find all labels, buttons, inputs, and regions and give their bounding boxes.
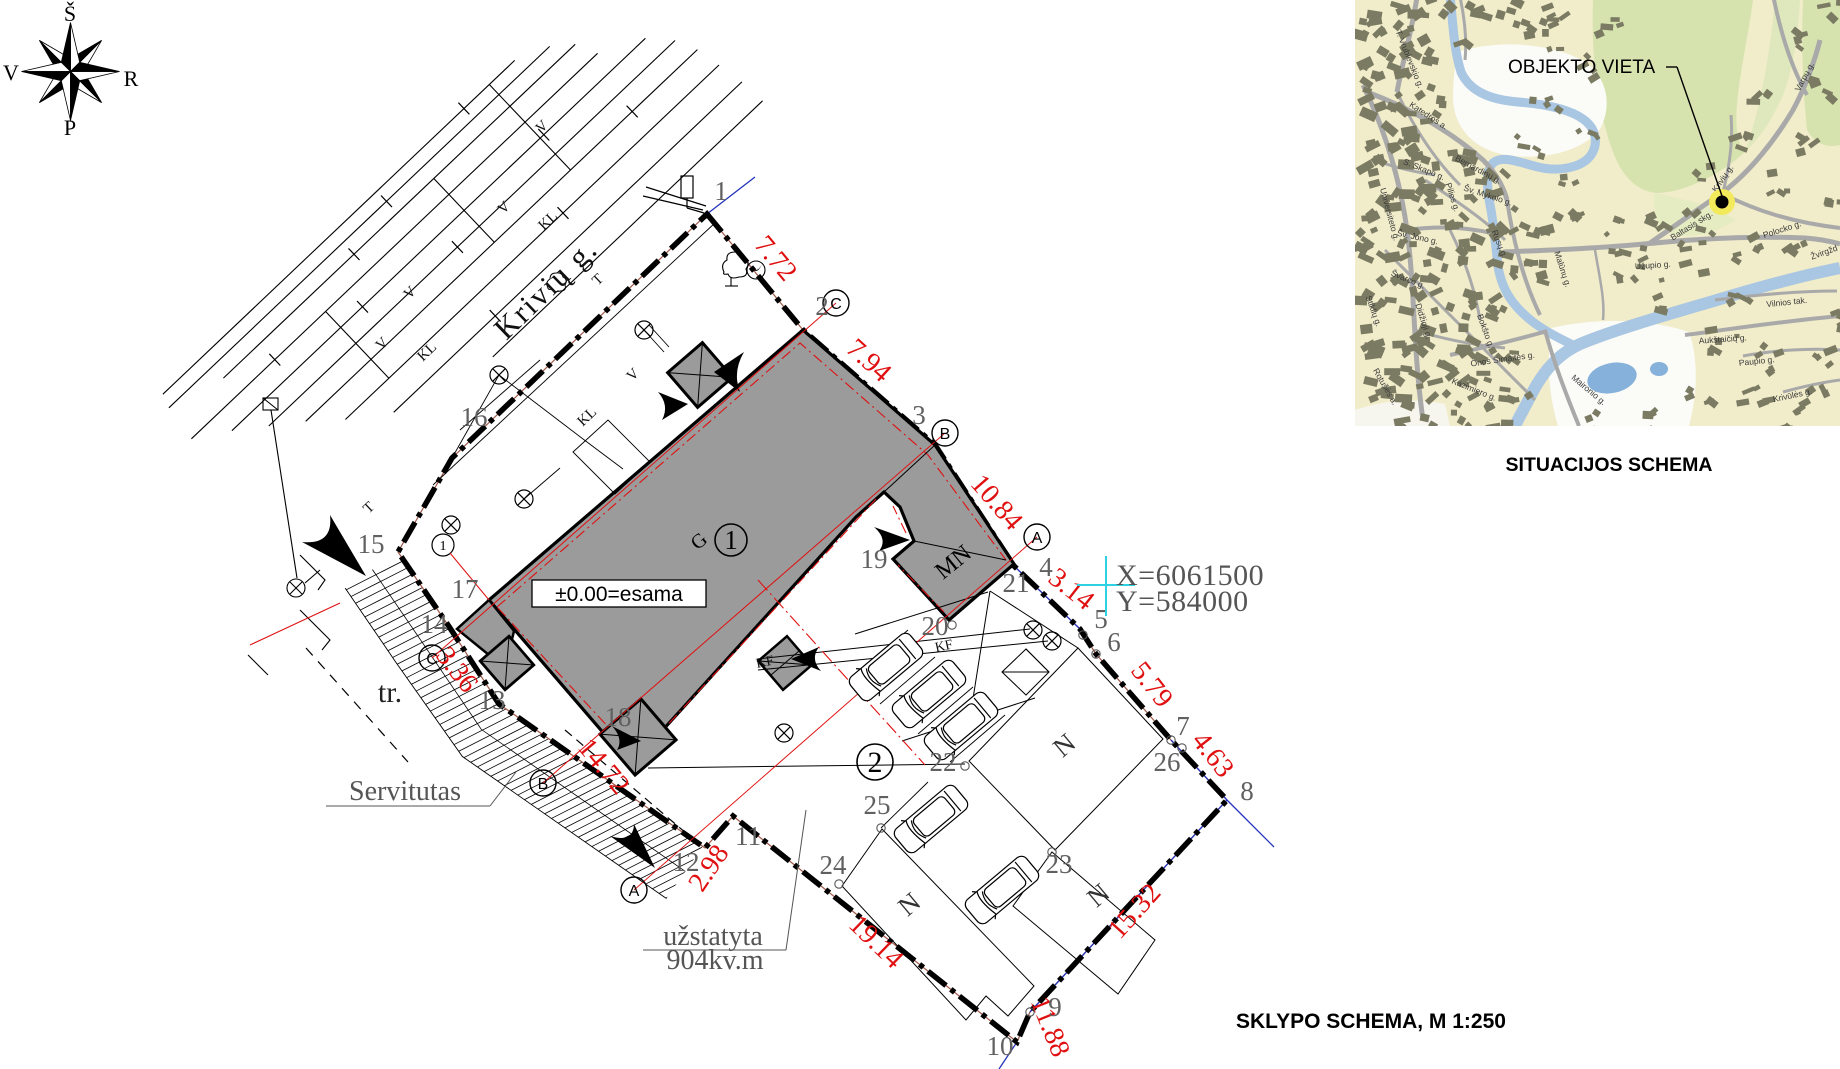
svg-text:A: A [1032,530,1043,547]
svg-text:2: 2 [868,746,883,779]
svg-text:B: B [538,776,549,793]
svg-text:10: 10 [987,1031,1014,1061]
svg-text:14: 14 [421,609,449,639]
svg-text:C: C [830,296,842,313]
svg-text:tr.: tr. [378,676,402,709]
svg-text:6: 6 [1107,627,1121,657]
svg-text:19: 19 [861,544,888,574]
svg-text:12: 12 [673,847,700,877]
svg-text:22: 22 [930,747,957,777]
svg-text:13: 13 [479,685,506,715]
svg-text:15: 15 [358,529,385,559]
svg-text:25: 25 [864,790,891,820]
svg-text:Š: Š [64,1,76,26]
svg-text:23: 23 [1046,849,1073,879]
svg-text:20: 20 [922,611,949,641]
svg-text:Y=584000: Y=584000 [1116,585,1249,618]
svg-text:Servitutas: Servitutas [349,776,461,807]
svg-text:SITUACIJOS SCHEMA: SITUACIJOS SCHEMA [1506,454,1713,476]
svg-text:R: R [124,66,139,91]
svg-text:2: 2 [815,291,829,321]
svg-text:1: 1 [724,525,738,555]
svg-text:21: 21 [1003,568,1030,598]
svg-text:1: 1 [714,176,728,206]
svg-text:9: 9 [1048,992,1062,1022]
svg-text:18: 18 [605,702,632,732]
svg-text:P: P [64,115,76,140]
svg-text:17: 17 [452,574,479,604]
svg-text:±0.00=esama: ±0.00=esama [555,583,683,606]
svg-text:1: 1 [440,539,447,554]
svg-text:3: 3 [912,400,926,430]
svg-text:16: 16 [461,402,488,432]
svg-text:OBJEKTO VIETA: OBJEKTO VIETA [1508,57,1655,78]
svg-text:4: 4 [1039,552,1053,582]
svg-text:11: 11 [735,821,761,851]
svg-text:A: A [629,883,640,900]
svg-text:8: 8 [1240,776,1254,806]
svg-text:26: 26 [1154,747,1181,777]
svg-text:B: B [940,426,951,443]
svg-text:7: 7 [1176,711,1190,741]
svg-text:V: V [3,60,19,85]
svg-text:SKLYPO SCHEMA, M 1:250: SKLYPO SCHEMA, M 1:250 [1236,1010,1506,1033]
svg-text:24: 24 [820,850,848,880]
